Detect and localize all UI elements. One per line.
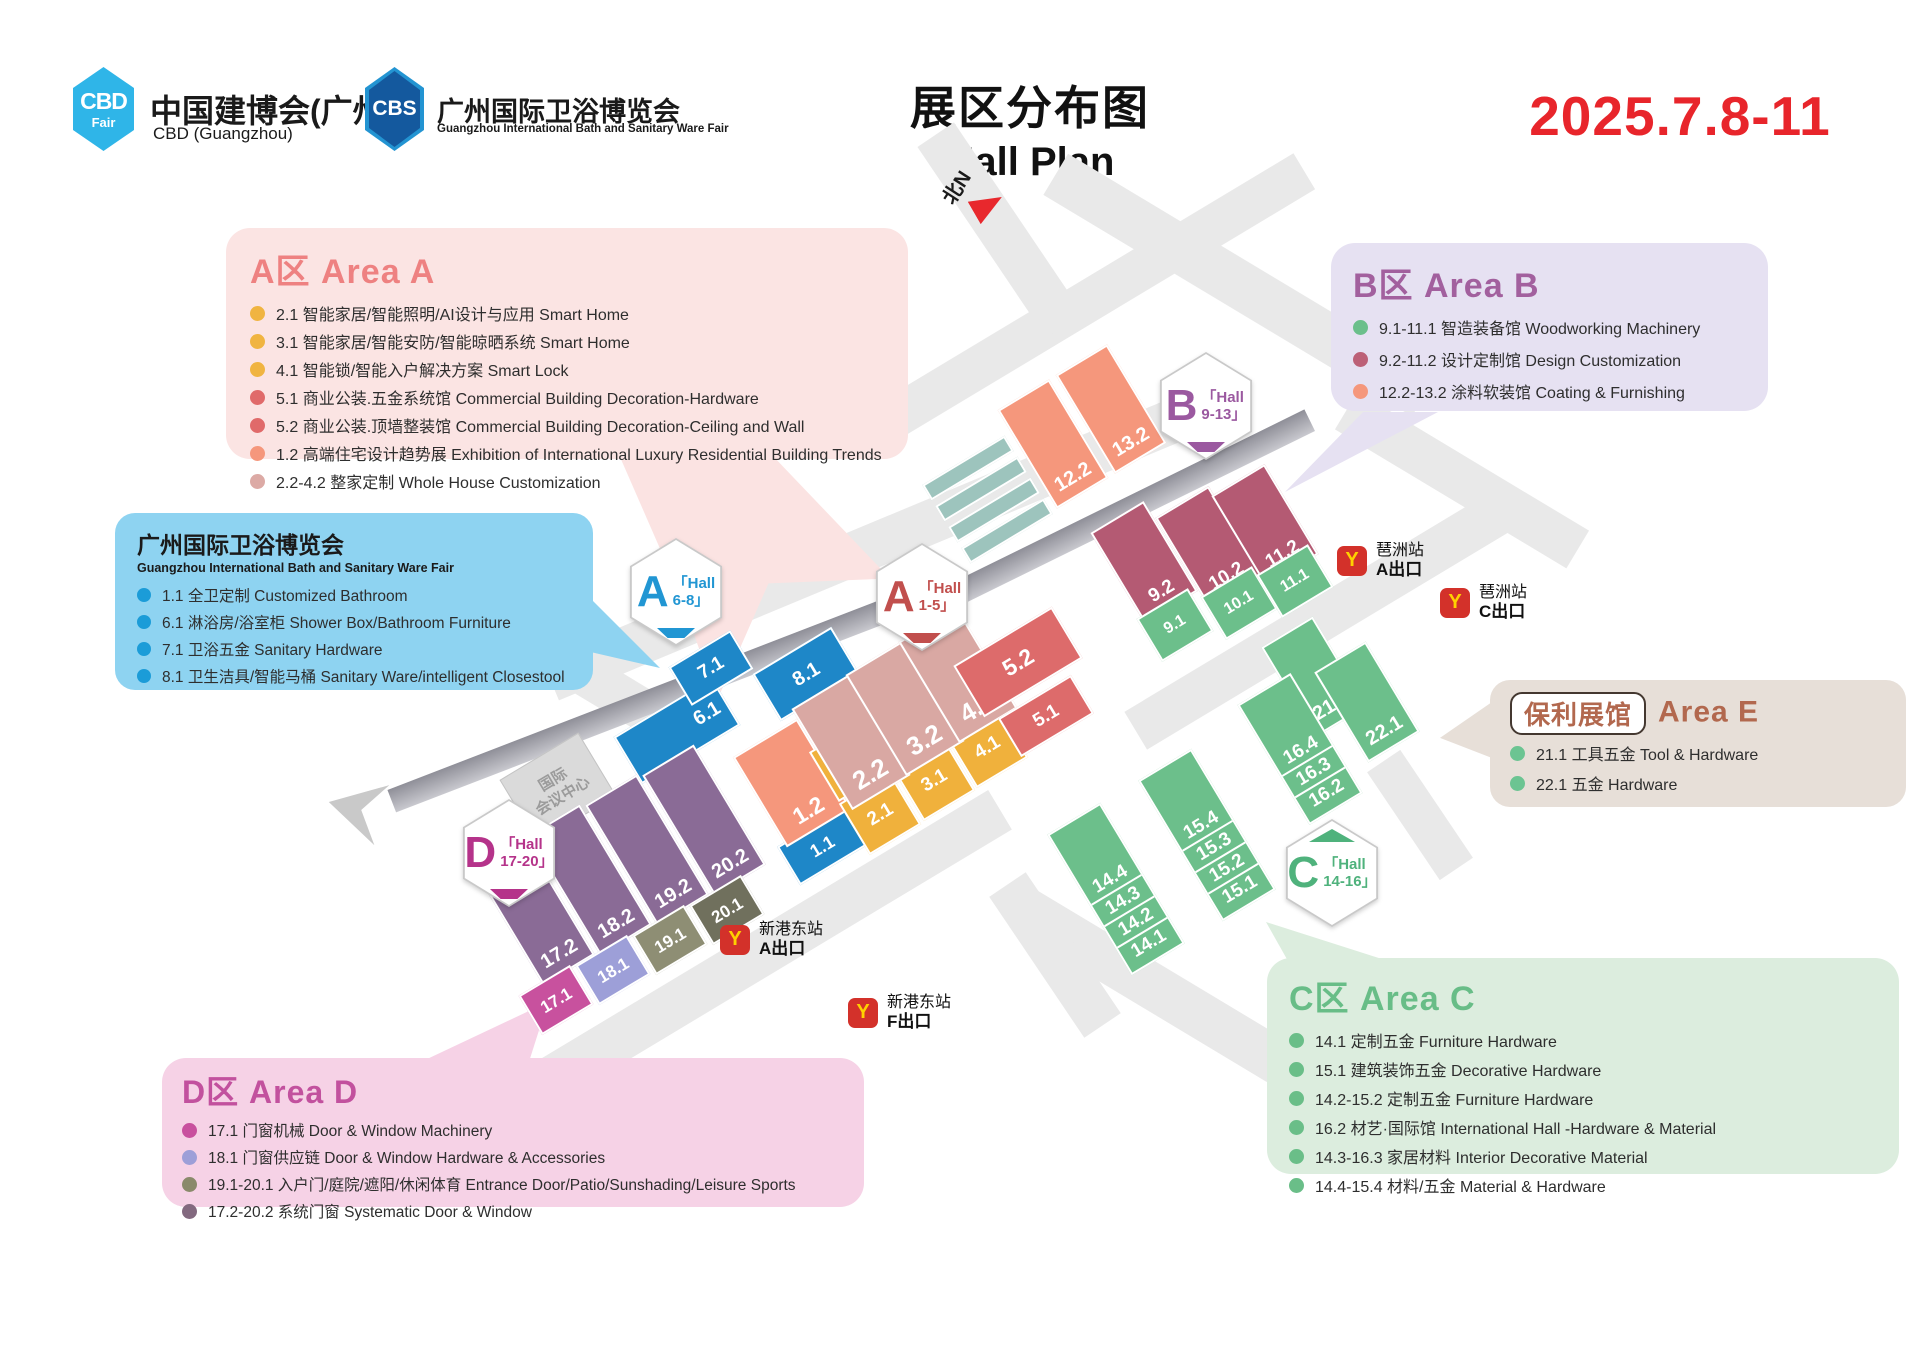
legend-item: 12.2-13.2 涂料软装馆 Coating & Furnishing — [1353, 379, 1768, 403]
area-a-panel: A区 Area A 2.1 智能家居/智能照明/AI设计与应用 Smart Ho… — [226, 228, 908, 459]
legend-dot-icon — [1289, 1033, 1304, 1048]
area-c-items: 14.1 定制五金 Furniture Hardware15.1 建筑装饰五金 … — [1289, 1028, 1899, 1197]
area-e-items: 21.1 工具五金 Tool & Hardware22.1 五金 Hardwar… — [1510, 741, 1906, 795]
legend-label: 18.1 门窗供应链 Door & Window Hardware & Acce… — [208, 1146, 605, 1168]
legend-dot-icon — [1289, 1149, 1304, 1164]
legend-item: 17.1 门窗机械 Door & Window Machinery — [182, 1119, 864, 1141]
legend-dot-icon — [137, 615, 151, 629]
badge-letter: D — [464, 831, 496, 875]
legend-dot-icon — [182, 1123, 197, 1138]
area-e-title-text: Area E — [1658, 695, 1759, 728]
metro-station-琶洲站-A出口: Y琶洲站A出口 — [1337, 541, 1424, 581]
area-e-panel: 保利展馆Area E 21.1 工具五金 Tool & Hardware22.1… — [1490, 680, 1906, 807]
legend-dot-icon — [137, 588, 151, 602]
badge-hall-range: 「Hall 14-16」 — [1323, 856, 1376, 891]
legend-label: 14.4-15.4 材料/五金 Material & Hardware — [1315, 1173, 1606, 1197]
legend-item: 6.1 淋浴房/浴室柜 Shower Box/Bathroom Furnitur… — [137, 611, 593, 633]
badge-hall-range: 「Hall 1-5」 — [919, 580, 962, 615]
legend-item: 14.1 定制五金 Furniture Hardware — [1289, 1028, 1899, 1052]
area-d-title: D区 Area D — [182, 1067, 864, 1113]
legend-label: 9.1-11.1 智造装备馆 Woodworking Machinery — [1379, 315, 1700, 339]
legend-dot-icon — [137, 669, 151, 683]
area-d-items: 17.1 门窗机械 Door & Window Machinery18.1 门窗… — [182, 1119, 864, 1222]
bath-fair-subtitle: Guangzhou International Bath and Sanitar… — [137, 561, 593, 575]
hall-badge-a-1-5: A「Hall 1-5」 — [873, 543, 971, 651]
area-a-items: 2.1 智能家居/智能照明/AI设计与应用 Smart Home3.1 智能家居… — [250, 301, 908, 493]
hall-label: 10.1 — [1210, 580, 1268, 626]
hall-plan-poster: CBD Fair 中国建博会(广州) CBD (Guangzhou) CBS 广… — [0, 0, 1920, 1358]
area-a-title: A区 Area A — [250, 244, 908, 293]
badge-hall-range: 「Hall 9-13」 — [1201, 389, 1246, 424]
legend-item: 22.1 五金 Hardware — [1510, 771, 1906, 795]
legend-label: 3.1 智能家居/智能安防/智能晾晒系统 Smart Home — [276, 329, 630, 353]
legend-item: 16.2 材艺·国际馆 International Hall -Hardware… — [1289, 1115, 1899, 1139]
area-d-panel: D区 Area D 17.1 门窗机械 Door & Window Machin… — [162, 1058, 864, 1207]
poly-hall-badge: 保利展馆 — [1510, 692, 1646, 735]
legend-label: 8.1 卫生洁具/智能马桶 Sanitary Ware/intelligent … — [162, 665, 565, 687]
legend-item: 14.2-15.2 定制五金 Furniture Hardware — [1289, 1086, 1899, 1110]
metro-icon: Y — [848, 998, 878, 1028]
legend-item: 18.1 门窗供应链 Door & Window Hardware & Acce… — [182, 1146, 864, 1168]
station-text: 琶洲站A出口 — [1376, 541, 1424, 581]
hall-label: 22.1 — [1354, 706, 1414, 755]
legend-label: 17.1 门窗机械 Door & Window Machinery — [208, 1119, 492, 1141]
area-c-panel: C区 Area C 14.1 定制五金 Furniture Hardware15… — [1267, 958, 1899, 1174]
legend-item: 2.2-4.2 整家定制 Whole House Customization — [250, 469, 908, 493]
hall-label: 9.1 — [1146, 602, 1204, 648]
hall-badge-d-17-20: D「Hall 17-20」 — [460, 799, 558, 907]
legend-dot-icon — [250, 306, 265, 321]
hall-badge-c-14-16: C「Hall 14-16」 — [1283, 819, 1381, 927]
legend-label: 2.1 智能家居/智能照明/AI设计与应用 Smart Home — [276, 301, 629, 325]
station-name: 琶洲站 — [1376, 541, 1424, 560]
legend-dot-icon — [250, 390, 265, 405]
area-c-title: C区 Area C — [1289, 971, 1899, 1020]
badge-letter: B — [1166, 384, 1198, 428]
badge-letter: A — [883, 575, 915, 619]
legend-item: 2.1 智能家居/智能照明/AI设计与应用 Smart Home — [250, 301, 908, 325]
legend-dot-icon — [250, 418, 265, 433]
legend-item: 15.1 建筑装饰五金 Decorative Hardware — [1289, 1057, 1899, 1081]
legend-label: 1.2 高端住宅设计趋势展 Exhibition of Internationa… — [276, 441, 882, 465]
hall-label: 7.1 — [676, 641, 746, 696]
badge-hall-range: 「Hall 17-20」 — [500, 836, 553, 871]
legend-label: 5.2 商业公装.顶墙整装馆 Commercial Building Decor… — [276, 413, 804, 437]
legend-dot-icon — [1289, 1091, 1304, 1106]
station-exit: A出口 — [1376, 560, 1424, 580]
badge-letter: C — [1287, 851, 1319, 895]
legend-label: 14.2-15.2 定制五金 Furniture Hardware — [1315, 1086, 1593, 1110]
hall-label: 12.2 — [1043, 452, 1103, 501]
legend-dot-icon — [182, 1150, 197, 1165]
metro-station-新港东站-A出口: Y新港东站A出口 — [720, 920, 823, 960]
legend-label: 4.1 智能锁/智能入户解决方案 Smart Lock — [276, 357, 569, 381]
legend-dot-icon — [1289, 1120, 1304, 1135]
road — [1367, 750, 1473, 880]
metro-icon: Y — [1337, 546, 1367, 576]
legend-dot-icon — [250, 474, 265, 489]
legend-label: 22.1 五金 Hardware — [1536, 771, 1677, 795]
metro-icon: Y — [720, 925, 750, 955]
area-b-items: 9.1-11.1 智造装备馆 Woodworking Machinery9.2-… — [1353, 315, 1768, 403]
station-exit: C出口 — [1479, 602, 1527, 622]
legend-dot-icon — [1289, 1062, 1304, 1077]
legend-item: 9.1-11.1 智造装备馆 Woodworking Machinery — [1353, 315, 1768, 339]
legend-dot-icon — [1353, 384, 1368, 399]
station-name: 琶洲站 — [1479, 583, 1527, 602]
legend-label: 19.1-20.1 入户门/庭院/遮阳/休闲体育 Entrance Door/P… — [208, 1173, 796, 1195]
legend-item: 9.2-11.2 设计定制馆 Design Customization — [1353, 347, 1768, 371]
badge-hall-range: 「Hall 6-8」 — [673, 575, 716, 610]
legend-dot-icon — [1353, 320, 1368, 335]
legend-label: 15.1 建筑装饰五金 Decorative Hardware — [1315, 1057, 1601, 1081]
station-text: 新港东站A出口 — [759, 920, 823, 960]
legend-item: 1.2 高端住宅设计趋势展 Exhibition of Internationa… — [250, 441, 908, 465]
hall-label: 11.1 — [1266, 558, 1324, 604]
hall-badge-a-6-8: A「Hall 6-8」 — [627, 538, 725, 646]
legend-label: 14.1 定制五金 Furniture Hardware — [1315, 1028, 1557, 1052]
legend-item: 5.2 商业公装.顶墙整装馆 Commercial Building Decor… — [250, 413, 908, 437]
legend-dot-icon — [250, 334, 265, 349]
legend-item: 8.1 卫生洁具/智能马桶 Sanitary Ware/intelligent … — [137, 665, 593, 687]
legend-label: 21.1 工具五金 Tool & Hardware — [1536, 741, 1758, 765]
legend-dot-icon — [250, 446, 265, 461]
road-arrow — [301, 767, 390, 846]
legend-item: 21.1 工具五金 Tool & Hardware — [1510, 741, 1906, 765]
legend-item: 17.2-20.2 系统门窗 Systematic Door & Window — [182, 1200, 864, 1222]
legend-dot-icon — [182, 1177, 197, 1192]
legend-item: 3.1 智能家居/智能安防/智能晾晒系统 Smart Home — [250, 329, 908, 353]
area-e-title: 保利展馆Area E — [1510, 692, 1906, 735]
legend-label: 17.2-20.2 系统门窗 Systematic Door & Window — [208, 1200, 532, 1222]
area-b-panel: B区 Area B 9.1-11.1 智造装备馆 Woodworking Mac… — [1331, 243, 1768, 411]
legend-item: 14.3-16.3 家居材料 Interior Decorative Mater… — [1289, 1144, 1899, 1168]
station-name: 新港东站 — [759, 920, 823, 939]
station-exit: A出口 — [759, 939, 823, 959]
legend-dot-icon — [1353, 352, 1368, 367]
station-exit: F出口 — [887, 1012, 951, 1032]
hall-label: 13.2 — [1101, 417, 1161, 466]
hall-label: 17.1 — [527, 977, 586, 1024]
north-indicator: 北N — [938, 172, 972, 201]
legend-item: 4.1 智能锁/智能入户解决方案 Smart Lock — [250, 357, 908, 381]
legend-dot-icon — [1510, 776, 1525, 791]
legend-label: 14.3-16.3 家居材料 Interior Decorative Mater… — [1315, 1144, 1648, 1168]
legend-item: 7.1 卫浴五金 Sanitary Hardware — [137, 638, 593, 660]
bath-fair-title: 广州国际卫浴博览会 — [137, 526, 593, 560]
metro-icon: Y — [1440, 588, 1470, 618]
hall-15.4: 15.415.315.215.1 — [1138, 749, 1276, 922]
legend-item: 1.1 全卫定制 Customized Bathroom — [137, 584, 593, 606]
area-c-pointer — [1266, 922, 1385, 960]
road — [917, 122, 1082, 337]
legend-dot-icon — [182, 1204, 197, 1219]
legend-label: 2.2-4.2 整家定制 Whole House Customization — [276, 469, 601, 493]
area-e-pointer — [1440, 702, 1492, 758]
legend-label: 16.2 材艺·国际馆 International Hall -Hardware… — [1315, 1115, 1716, 1139]
station-name: 新港东站 — [887, 993, 951, 1012]
hall-badge-b-9-13: B「Hall 9-13」 — [1157, 352, 1255, 460]
legend-dot-icon — [250, 362, 265, 377]
metro-station-新港东站-F出口: Y新港东站F出口 — [848, 993, 951, 1033]
station-text: 新港东站F出口 — [887, 993, 951, 1033]
legend-dot-icon — [1510, 746, 1525, 761]
legend-item: 14.4-15.4 材料/五金 Material & Hardware — [1289, 1173, 1899, 1197]
legend-label: 12.2-13.2 涂料软装馆 Coating & Furnishing — [1379, 379, 1685, 403]
station-text: 琶洲站C出口 — [1479, 583, 1527, 623]
badge-letter: A — [637, 570, 669, 614]
legend-label: 5.1 商业公装.五金系统馆 Commercial Building Decor… — [276, 385, 759, 409]
legend-label: 6.1 淋浴房/浴室柜 Shower Box/Bathroom Furnitur… — [162, 611, 511, 633]
bath-fair-panel: 广州国际卫浴博览会 Guangzhou International Bath a… — [115, 513, 593, 690]
area-b-title: B区 Area B — [1353, 258, 1768, 307]
legend-dot-icon — [137, 642, 151, 656]
legend-label: 9.2-11.2 设计定制馆 Design Customization — [1379, 347, 1681, 371]
legend-label: 1.1 全卫定制 Customized Bathroom — [162, 584, 408, 606]
legend-item: 19.1-20.1 入户门/庭院/遮阳/休闲体育 Entrance Door/P… — [182, 1173, 864, 1195]
legend-item: 5.1 商业公装.五金系统馆 Commercial Building Decor… — [250, 385, 908, 409]
legend-label: 7.1 卫浴五金 Sanitary Hardware — [162, 638, 383, 660]
legend-dot-icon — [1289, 1178, 1304, 1193]
bath-fair-items: 1.1 全卫定制 Customized Bathroom6.1 淋浴房/浴室柜 … — [137, 584, 593, 687]
metro-station-琶洲站-C出口: Y琶洲站C出口 — [1440, 583, 1527, 623]
